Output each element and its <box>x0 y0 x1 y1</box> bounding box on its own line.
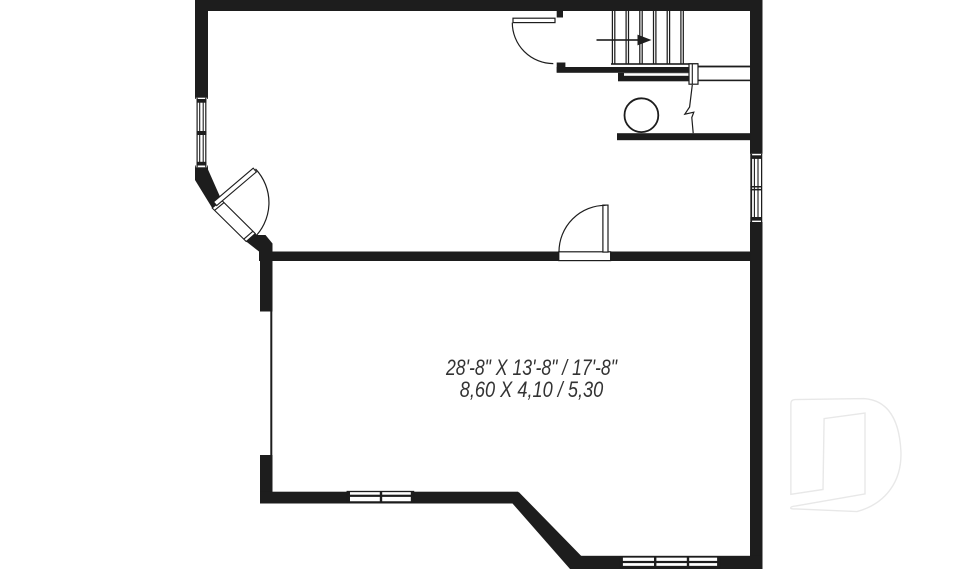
svg-text:8,60 X 4,10 / 5,30: 8,60 X 4,10 / 5,30 <box>460 377 604 402</box>
